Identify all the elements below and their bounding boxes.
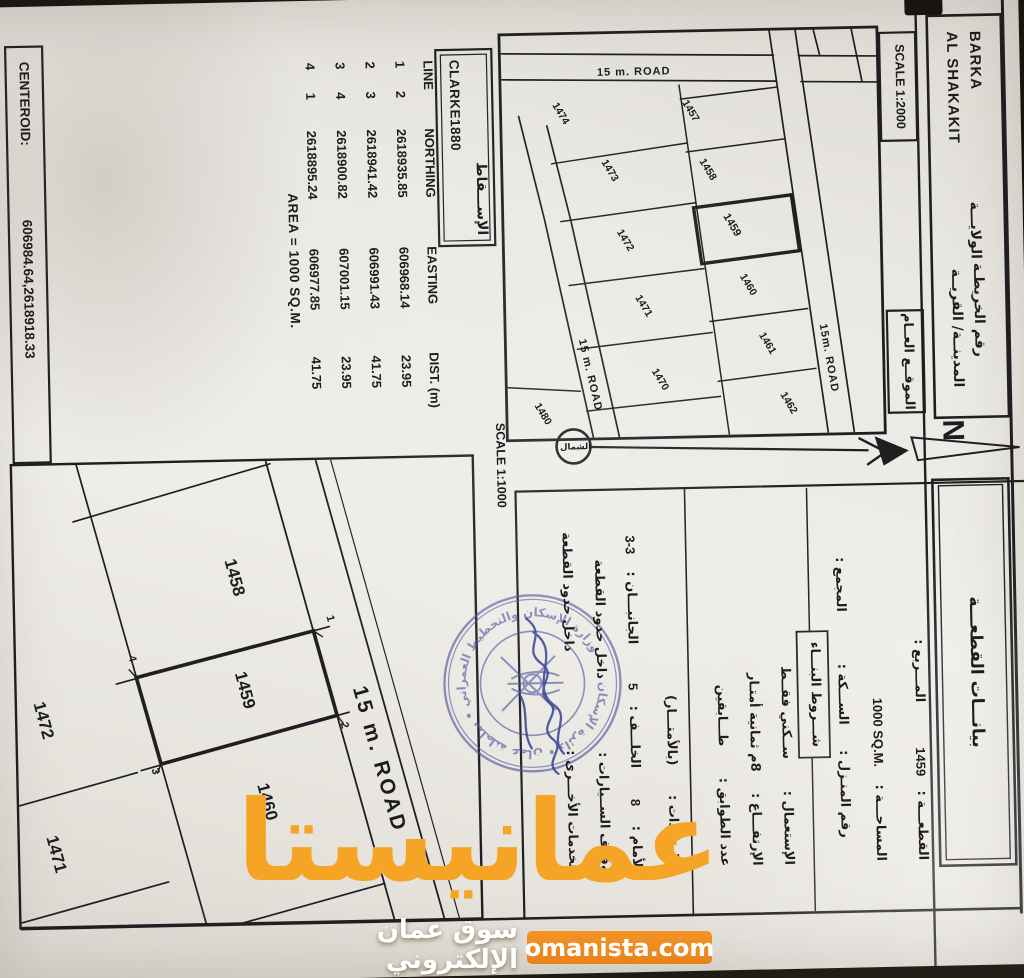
watermark-domain-pill: omanista.com [527,931,712,964]
table-cell: 23.95 [339,356,355,389]
north-arrow-circle-label: الشمال [559,442,591,453]
watermark-domain: omanista.com [525,934,715,962]
detail-label: الســـكة : [834,664,850,725]
table-cell: 607001.15 [336,248,352,310]
table-cell: 2 [393,91,408,99]
table-cell: 2 [362,61,377,69]
detail-label: الإرتفـــاع : [748,793,765,866]
detail-label: داخل حدود القطعة [591,559,608,679]
scan-edge-notch [904,0,943,15]
table-cell: 2618900.82 [334,130,350,199]
table-cell: 2618895.24 [304,131,320,200]
detail-label: طـــابقين [714,685,730,747]
location-map-scale: SCALE 1:2000 [892,32,908,140]
table-cell: 606968.14 [396,247,412,309]
centeroid-label: CENTEROID: [16,62,33,146]
location-map-label: الموقــع العــام [900,310,917,412]
projection-label: الإســـقاط [473,162,491,236]
scanned-krooki-screenshot: وزارة الإسكان والتخطيط العمراني • سلطنة … [0,0,1024,978]
table-header: DIST. (m) [427,352,443,408]
table-cell: 23.95 [399,355,415,388]
detail-label: المساحـــة : [872,784,889,861]
table-cell: 3 [332,62,347,70]
table-cell: 606991.43 [366,247,382,309]
table-cell: 606977.85 [306,249,322,311]
table-cell: 41.75 [309,357,325,390]
detail-label: الخلـــف : [626,705,642,768]
city-label: المدينــة/ القريــة [948,268,966,387]
table-cell: 4 [302,63,317,71]
detail-label: القطعـــة : [914,790,930,860]
wilaya-value: BARKA [966,31,984,91]
detail-value: 3-3 [622,535,637,554]
detail-label: (بالأمتـــار) [663,695,679,766]
watermark-brand: عمانيستا [288,762,720,932]
table-cell: 2618941.42 [364,129,380,198]
detail-label: المجمع : [832,557,848,612]
map-road-label: 15 m. ROAD [597,65,671,79]
table-cell: 4 [333,92,348,100]
detail-label: ســكني فقــط [777,666,794,759]
map-number-label: رقم الخريطـة [970,263,988,357]
building-conditions-label: شـــروط البنـــاء [806,631,824,757]
wilaya-label: الولايـــة [967,201,984,259]
table-cell: 1 [392,61,407,69]
detail-label: الإستعمال : [780,791,797,865]
detail-label: الجانبـــان : [623,571,640,644]
city-value: AL SHAKAKIT [943,31,962,144]
detail-label: رقم المنـزل : [836,750,853,838]
table-header: LINE [420,60,436,90]
table-header: NORTHING [422,128,438,198]
detail-value: 1459 [913,747,929,776]
site-plan-scale: SCALE 1:1000 [493,423,509,508]
detail-value: 1000 SQ.M. [870,698,886,768]
detail-label: 8م ثمانية أمتـار [745,673,762,772]
table-header: EASTING [424,246,440,304]
detail-value: 5 [626,683,641,691]
detail-label: المـــربع : [911,639,927,702]
projection-value: CLARKE1880 [446,60,463,152]
centeroid-value: 606984.64,2618918.33 [20,220,38,359]
watermark-tagline: سوق عمان الإلكتروني [286,924,518,966]
area-line: AREA = 1000 SQ.M. [285,193,303,329]
table-cell: 2618935.85 [394,129,410,198]
table-cell: 1 [303,93,318,101]
detail-label: داخل حدود القطعة [558,532,575,652]
table-cell: 3 [363,91,378,99]
north-arrow-n: N [935,419,969,441]
table-cell: 41.75 [369,355,385,388]
